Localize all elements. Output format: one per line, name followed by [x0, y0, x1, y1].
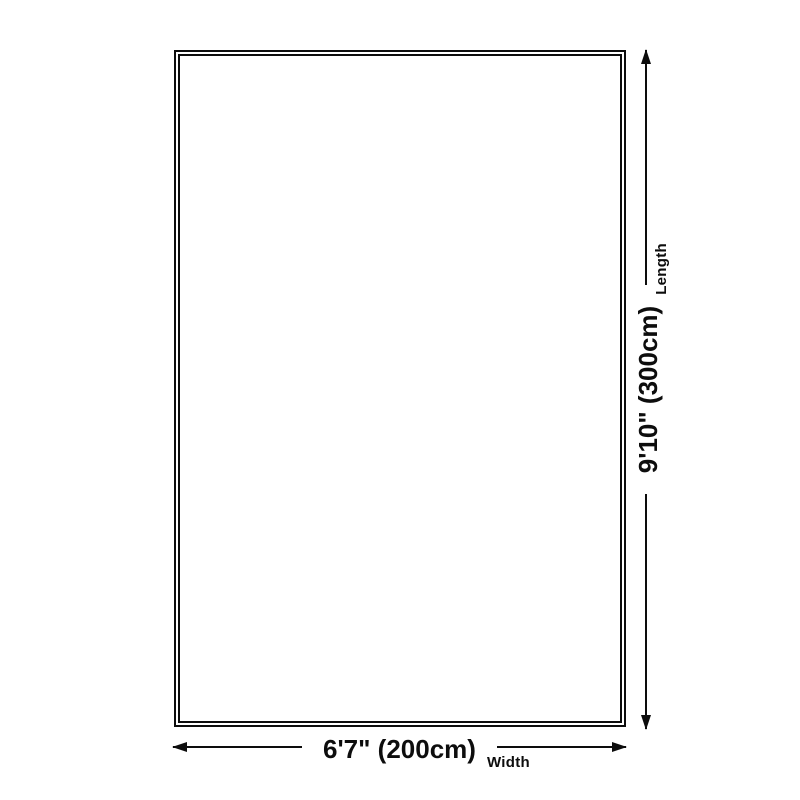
- arrow-right-icon: [612, 742, 627, 752]
- length-label: Length: [653, 243, 670, 295]
- width-arrow-left-segment: [173, 746, 302, 748]
- rug-inner-outline: [178, 54, 622, 723]
- arrow-left-icon: [172, 742, 187, 752]
- width-value: 6'7" (200cm): [323, 733, 476, 762]
- arrow-up-icon: [641, 49, 651, 64]
- length-dimension: 9'10" (300cm) Length: [622, 50, 670, 729]
- rug-outline: [174, 50, 626, 727]
- width-label: Width: [487, 754, 530, 771]
- rug-size-diagram: 6'7" (200cm) Width 9'10" (300cm) Length: [0, 0, 800, 800]
- length-arrow-top-segment: Length: [645, 50, 647, 285]
- arrow-down-icon: [641, 715, 651, 730]
- length-arrow-bottom-segment: [645, 494, 647, 729]
- length-value: 9'10" (300cm): [632, 306, 661, 473]
- width-dimension: 6'7" (200cm) Width: [173, 723, 626, 771]
- width-arrow-right-segment: Width: [497, 746, 626, 748]
